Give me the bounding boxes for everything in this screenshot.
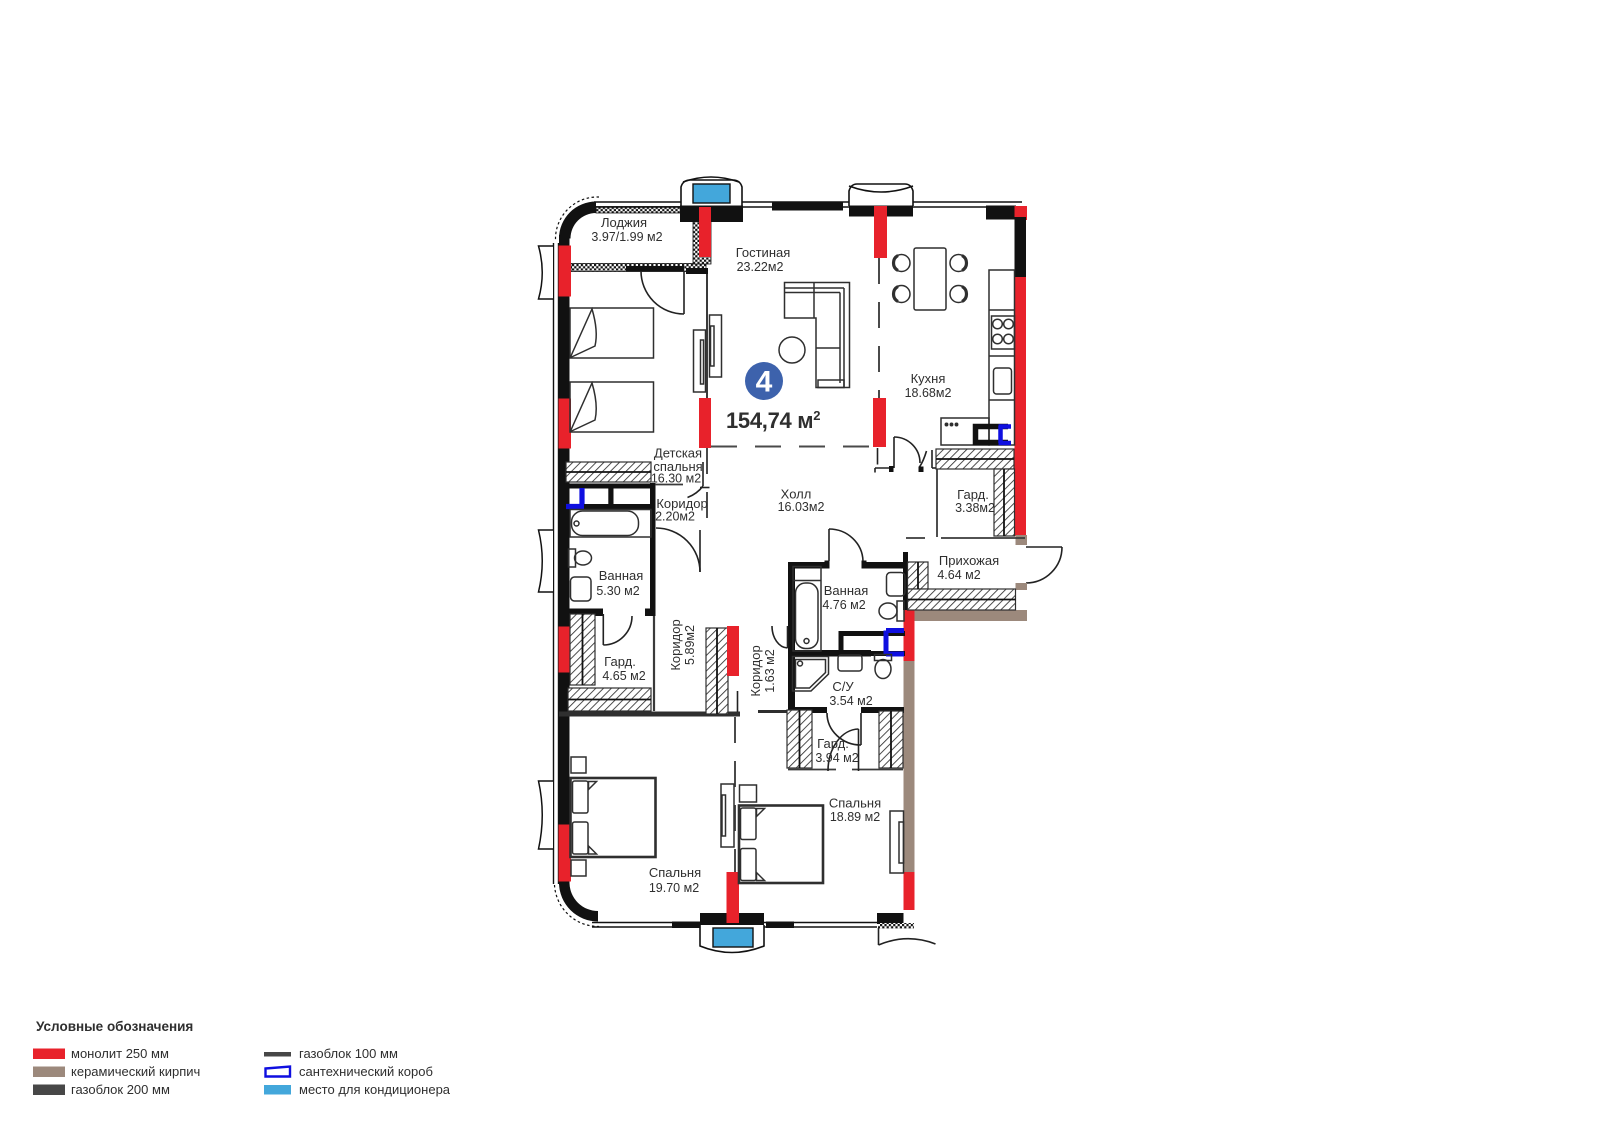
svg-text:19.70 м2: 19.70 м2 — [649, 881, 699, 895]
svg-text:Ванная: Ванная — [824, 583, 869, 598]
svg-text:Гард.: Гард. — [957, 487, 989, 502]
svg-text:2.20м2: 2.20м2 — [655, 510, 695, 524]
svg-text:Лоджия: Лоджия — [601, 215, 647, 230]
svg-text:4.76 м2: 4.76 м2 — [822, 598, 865, 612]
svg-text:Спальня: Спальня — [649, 865, 701, 880]
svg-text:газоблок 200 мм: газоблок 200 мм — [71, 1082, 170, 1097]
svg-text:Гард.: Гард. — [604, 654, 636, 669]
svg-text:газоблок 100 мм: газоблок 100 мм — [299, 1046, 398, 1061]
svg-text:Гостиная: Гостиная — [736, 245, 791, 260]
svg-text:3.97/1.99 м2: 3.97/1.99 м2 — [591, 230, 662, 244]
svg-text:Ванная: Ванная — [599, 568, 644, 583]
svg-text:16.30 м2: 16.30 м2 — [651, 472, 701, 486]
svg-text:керамический кирпич: керамический кирпич — [71, 1064, 200, 1079]
svg-text:сантехнический короб: сантехнический короб — [299, 1064, 433, 1079]
svg-text:3.54 м2: 3.54 м2 — [829, 694, 872, 708]
svg-text:23.22м2: 23.22м2 — [737, 260, 784, 274]
svg-text:Прихожая: Прихожая — [939, 553, 999, 568]
svg-text:4.65 м2: 4.65 м2 — [602, 669, 645, 683]
svg-text:Условные обозначения: Условные обозначения — [36, 1019, 193, 1034]
svg-text:5.30 м2: 5.30 м2 — [596, 584, 639, 598]
svg-text:16.03м2: 16.03м2 — [778, 500, 825, 514]
svg-text:4.64 м2: 4.64 м2 — [937, 568, 980, 582]
svg-text:С/У: С/У — [832, 679, 854, 694]
svg-text:3.94 м2: 3.94 м2 — [815, 751, 858, 765]
svg-text:Коридор: Коридор — [668, 619, 683, 670]
svg-text:5.89м2: 5.89м2 — [683, 625, 697, 665]
svg-text:Кухня: Кухня — [911, 371, 946, 386]
svg-text:3.38м2: 3.38м2 — [955, 501, 995, 515]
svg-text:Гард.: Гард. — [817, 736, 849, 751]
svg-text:18.68м2: 18.68м2 — [905, 386, 952, 400]
svg-text:Спальня: Спальня — [829, 796, 881, 811]
svg-text:154,74 м2: 154,74 м2 — [726, 408, 820, 433]
svg-text:монолит 250 мм: монолит 250 мм — [71, 1046, 169, 1061]
svg-text:Коридор: Коридор — [748, 645, 763, 696]
svg-text:4: 4 — [756, 366, 773, 399]
svg-text:18.89 м2: 18.89 м2 — [830, 810, 880, 824]
svg-text:место для кондиционера: место для кондиционера — [299, 1082, 451, 1097]
svg-text:1.63 м2: 1.63 м2 — [763, 649, 777, 692]
